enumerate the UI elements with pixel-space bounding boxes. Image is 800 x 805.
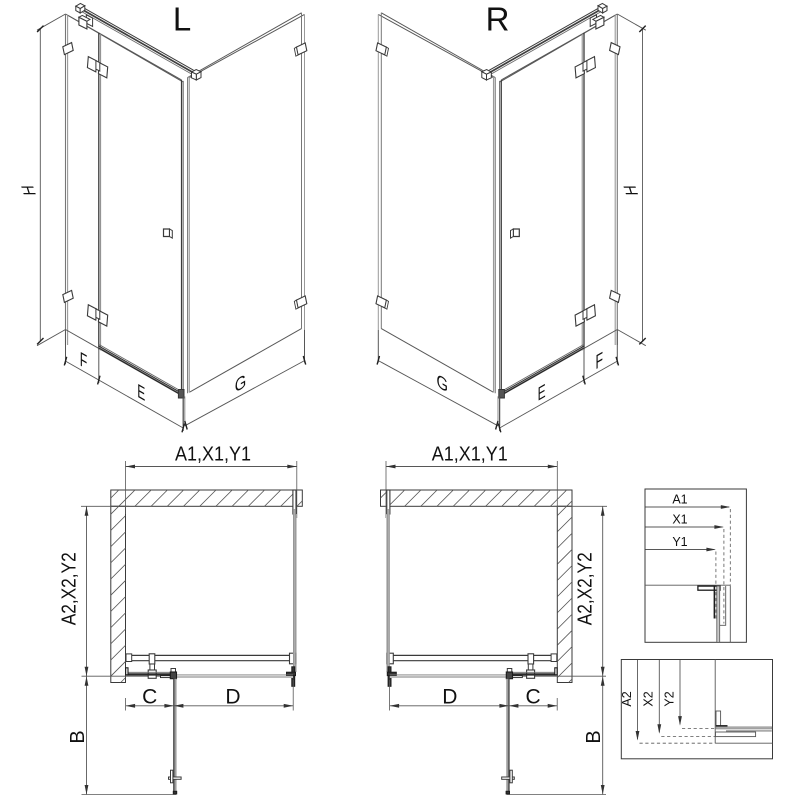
svg-text:B: B [583, 730, 605, 743]
svg-text:H: H [619, 185, 642, 195]
svg-text:A1,X1,Y1: A1,X1,Y1 [432, 443, 508, 466]
svg-text:C: C [142, 686, 157, 709]
svg-text:H: H [17, 185, 40, 195]
svg-text:A1: A1 [672, 493, 687, 507]
svg-text:A2: A2 [620, 691, 634, 706]
svg-text:D: D [225, 686, 240, 709]
svg-text:R: R [486, 1, 510, 38]
svg-text:Y1: Y1 [672, 535, 687, 549]
svg-text:Y2: Y2 [663, 691, 677, 706]
svg-text:F: F [596, 347, 604, 374]
svg-text:E: E [538, 380, 546, 406]
svg-text:A2,X2,Y2: A2,X2,Y2 [58, 552, 81, 625]
svg-text:C: C [526, 686, 541, 709]
svg-text:F: F [80, 347, 88, 374]
svg-text:E: E [137, 380, 145, 406]
svg-text:A2,X2,Y2: A2,X2,Y2 [574, 552, 597, 625]
svg-text:A1,X1,Y1: A1,X1,Y1 [175, 443, 251, 466]
svg-text:D: D [442, 686, 457, 709]
svg-text:X1: X1 [672, 513, 687, 527]
svg-text:B: B [67, 730, 89, 743]
svg-text:X2: X2 [641, 691, 655, 706]
svg-text:L: L [173, 1, 191, 38]
